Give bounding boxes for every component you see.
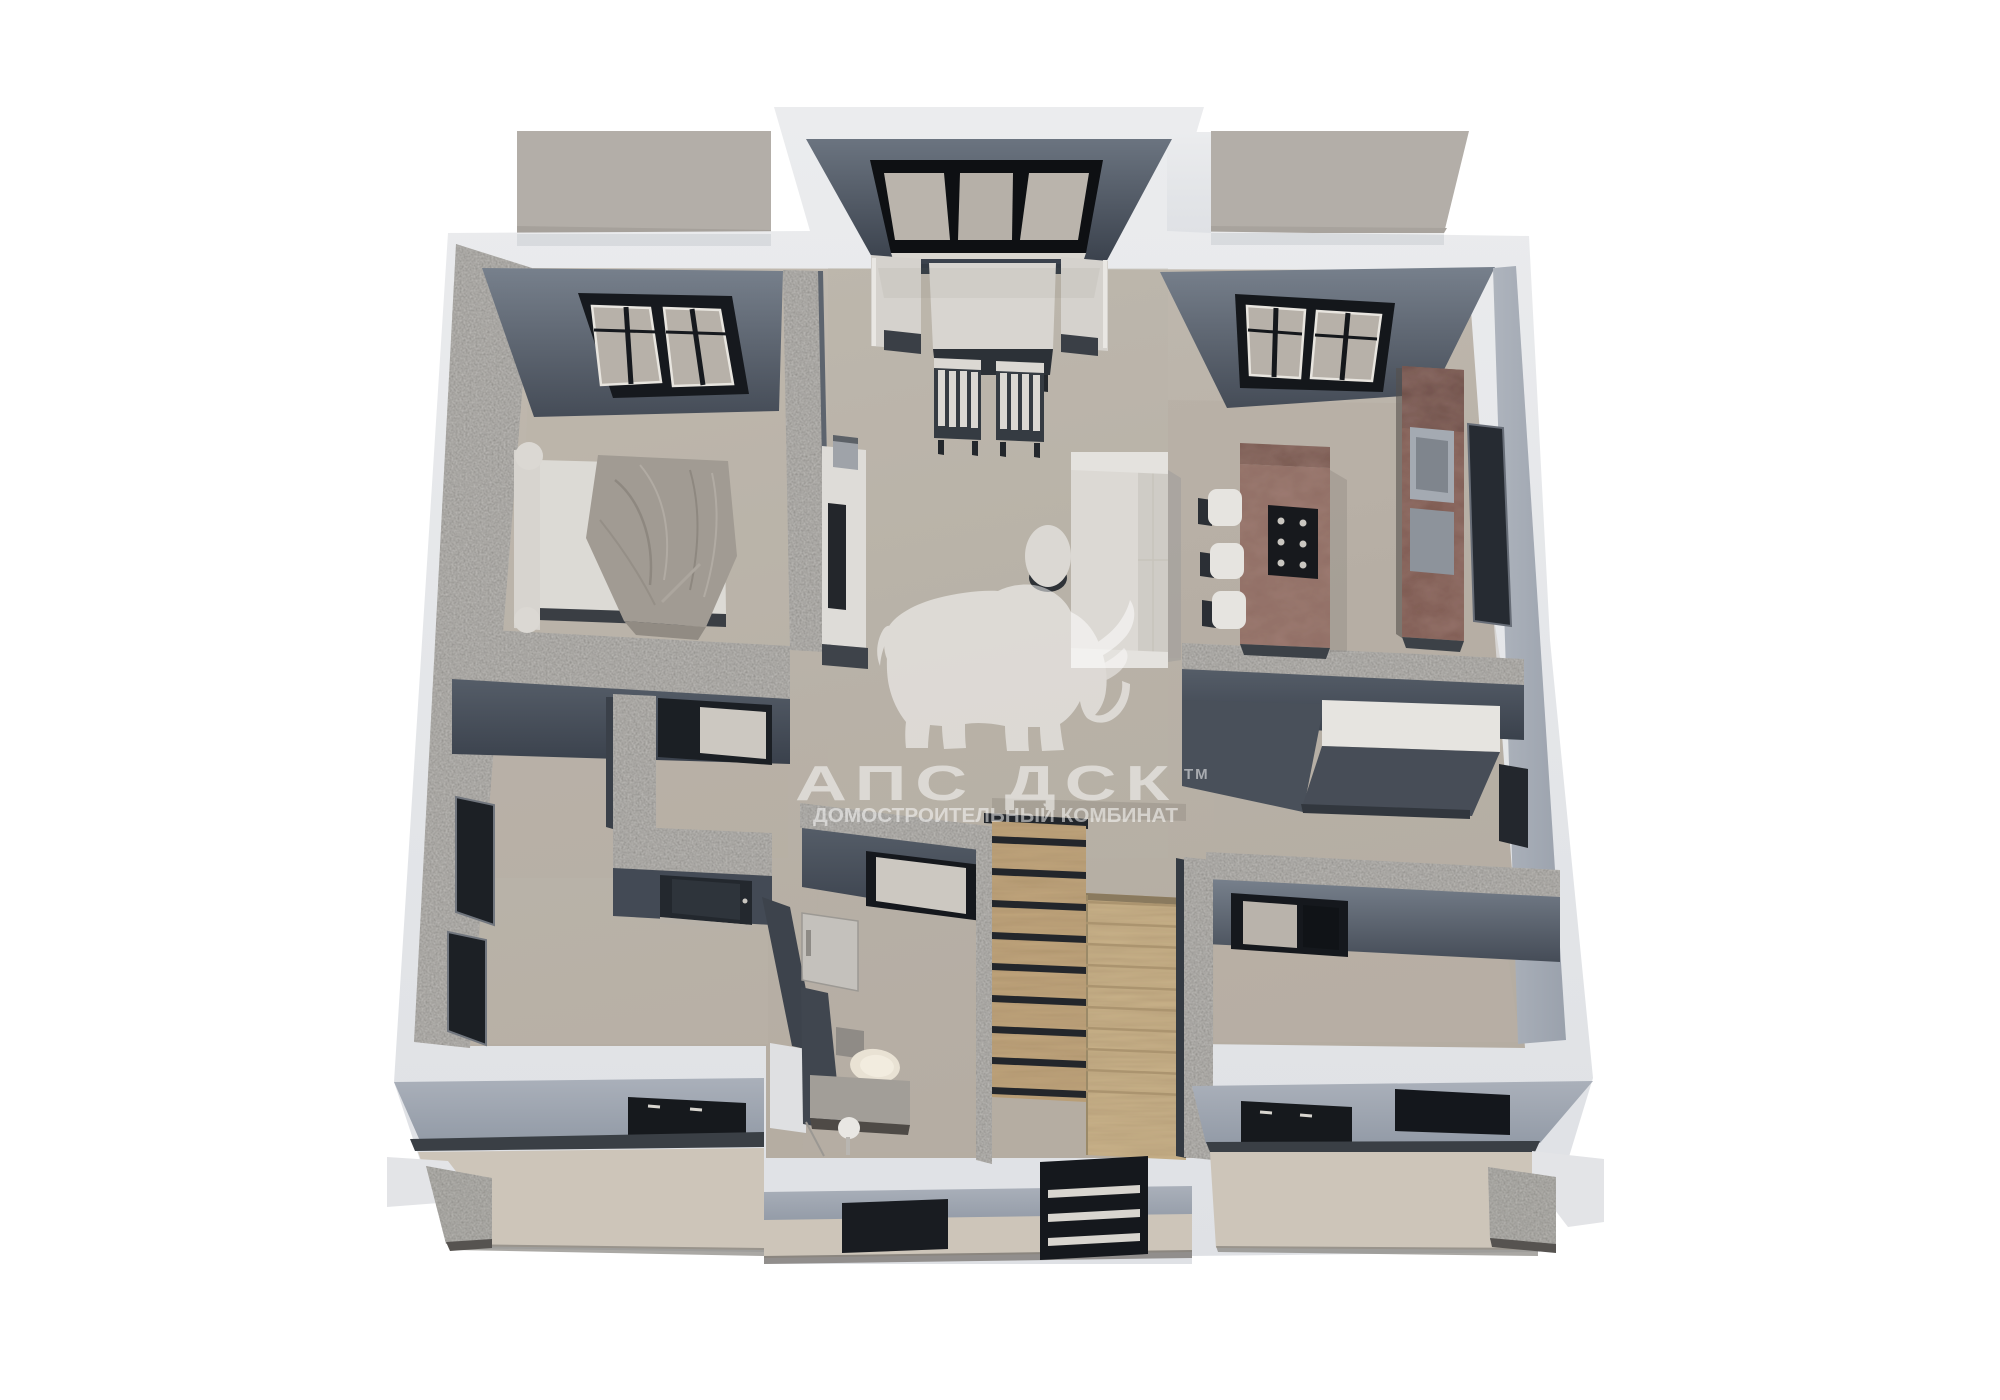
svg-text:ТМ: ТМ: [1184, 766, 1210, 783]
svg-text:ДОМОСТРОИТЕЛЬНЫЙ КОМБИНАТ: ДОМОСТРОИТЕЛЬНЫЙ КОМБИНАТ: [813, 803, 1178, 827]
svg-text:АПС ДСК: АПС ДСК: [795, 757, 1178, 811]
